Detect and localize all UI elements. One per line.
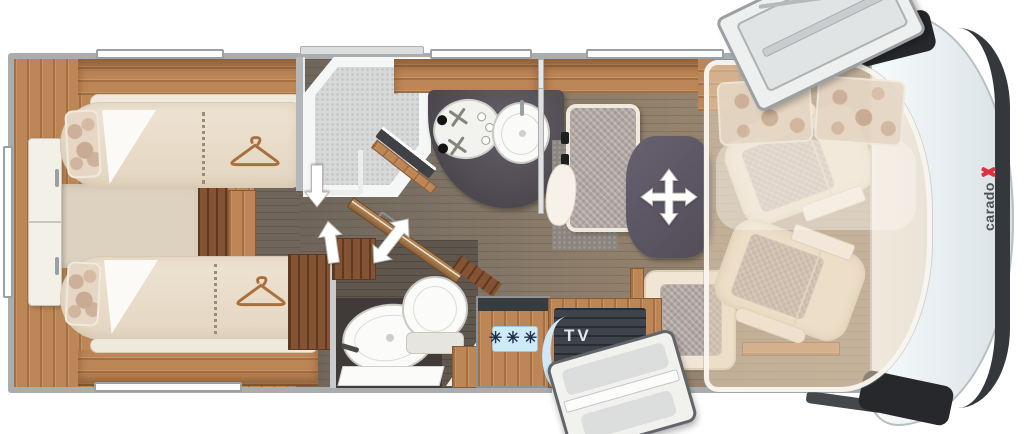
rear-top-shelf: [78, 59, 304, 95]
arrow-down-icon: [304, 164, 330, 208]
vanity-shelf: [338, 366, 445, 386]
bedroom-step-upper: [228, 190, 256, 264]
bedroom-step-lower: [198, 188, 228, 266]
stove-knob: [436, 114, 448, 126]
dropdown-bed-pillow: [814, 75, 906, 147]
hanger-icon: [226, 136, 284, 172]
window-top-dinette: [586, 49, 724, 59]
bed-bottom-pillow: [64, 261, 101, 327]
bed-top-pillow: [64, 109, 102, 179]
rear-bottom-shelf: [78, 350, 318, 386]
brand-logo-text: carado: [981, 182, 997, 231]
move-arrow-icon: [638, 166, 700, 228]
dinette-table: [626, 136, 712, 258]
wardrobe-cabinet: [28, 138, 62, 306]
hanger-icon: [232, 276, 290, 312]
kitchen-partition-wall: [538, 88, 544, 214]
sink-faucet: [520, 100, 524, 116]
bed-bottom-divider-dots: [214, 264, 217, 334]
wardrobe-handle: [55, 169, 59, 187]
freezer-badge: ✳✳✳: [492, 326, 538, 352]
brand-logo-x-icon: [981, 166, 996, 179]
bench-hinge: [561, 132, 569, 144]
bed-bottom-locker-strip: [90, 338, 318, 353]
window-rear: [3, 146, 13, 298]
bed-overlay-sheet: [716, 140, 916, 230]
bed-top-divider-dots: [202, 112, 205, 184]
toilet-bowl-line: [413, 286, 457, 332]
stove-control: [481, 135, 491, 145]
shower-wall-line-v: [358, 150, 363, 194]
stove-control: [476, 112, 486, 122]
wardrobe-divider: [29, 221, 61, 223]
sink-drain: [519, 130, 526, 137]
kitchen-overhead-lockers: [394, 59, 538, 93]
window-bottom-bedroom: [94, 382, 242, 392]
motorhome-floorplan: ✳✳✳ TV carado: [0, 0, 1024, 434]
wardrobe-handle: [55, 257, 59, 275]
window-top-bedroom: [96, 49, 224, 59]
stove-burner-icon: [444, 133, 469, 158]
stove-burner-icon: [445, 105, 470, 130]
skylight-shower: [300, 46, 424, 55]
fridge-cabinet: ✳✳✳: [476, 296, 550, 388]
window-top-kitchen: [430, 49, 532, 59]
dinette-overhead-lockers: [544, 59, 706, 93]
fridge-top: [478, 298, 548, 311]
brand-logo: carado: [981, 111, 999, 231]
freezer-stars-icon: ✳✳✳: [489, 331, 541, 347]
